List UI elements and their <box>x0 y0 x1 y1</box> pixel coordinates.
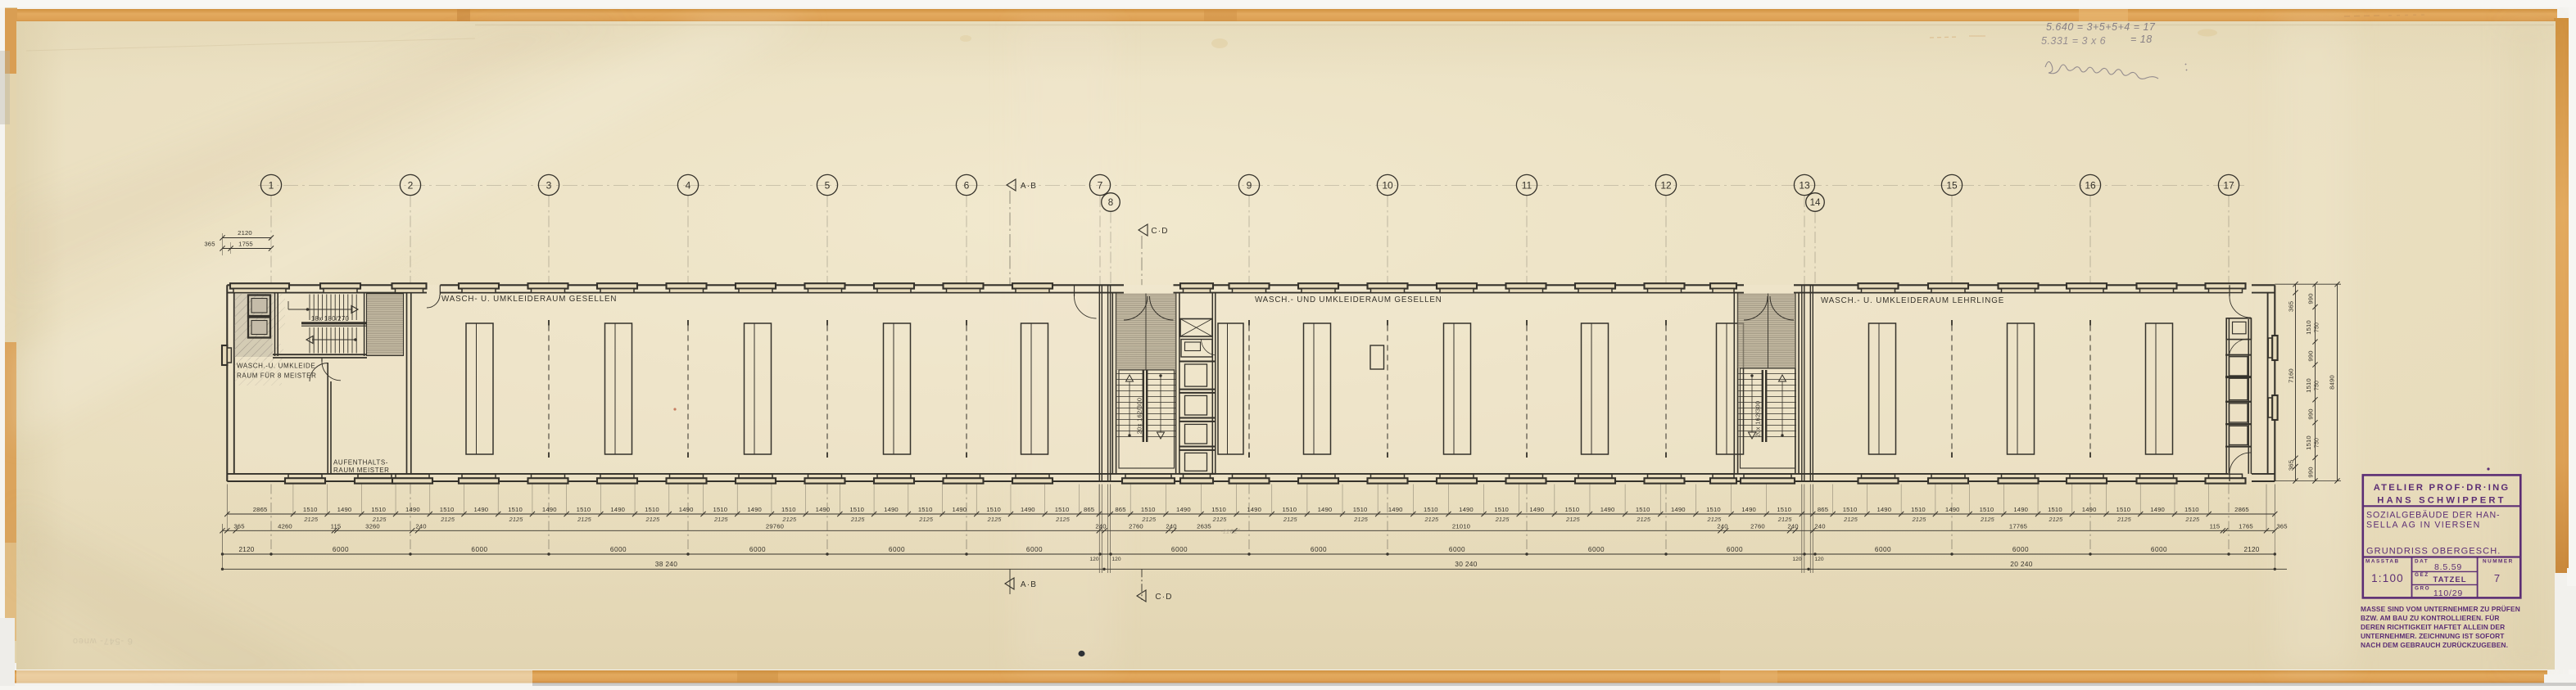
svg-text:6000: 6000 <box>1171 546 1188 553</box>
svg-text:1510: 1510 <box>1843 506 1858 513</box>
svg-text:1490: 1490 <box>1600 506 1615 513</box>
svg-text:1490: 1490 <box>1176 506 1191 513</box>
svg-text:7: 7 <box>2494 572 2500 584</box>
svg-text:2635: 2635 <box>1197 523 1211 530</box>
svg-text:A·B: A·B <box>1021 182 1037 191</box>
svg-text:1510: 1510 <box>1494 506 1509 513</box>
svg-text:17765: 17765 <box>2009 523 2027 530</box>
svg-text:1490: 1490 <box>747 506 762 513</box>
svg-text:1510: 1510 <box>781 506 796 513</box>
svg-text:2760: 2760 <box>1750 523 1765 530</box>
svg-text:NACH DEM GEBRAUCH ZURÜCKZUGEBE: NACH DEM GEBRAUCH ZURÜCKZUGEBEN. <box>2361 641 2508 649</box>
svg-text:= 18: = 18 <box>2130 34 2153 45</box>
svg-text:7160: 7160 <box>2288 368 2295 383</box>
svg-text:2125: 2125 <box>509 516 524 523</box>
svg-text:1490: 1490 <box>1671 506 1686 513</box>
svg-text:TATZEL: TATZEL <box>2433 575 2467 584</box>
svg-text:1510: 1510 <box>1282 506 1297 513</box>
svg-text:SOZIALGEBÄUDE DER HAN-: SOZIALGEBÄUDE DER HAN- <box>2366 511 2500 521</box>
svg-text:240: 240 <box>1717 523 1727 530</box>
svg-text:2125: 2125 <box>1283 516 1298 523</box>
svg-text:UNTERNEHMER. ZEICHNUNG IST SOF: UNTERNEHMER. ZEICHNUNG IST SOFORT <box>2361 632 2505 640</box>
svg-text:1490: 1490 <box>2082 506 2097 513</box>
svg-text:365: 365 <box>2288 460 2295 471</box>
svg-text:1510: 1510 <box>2184 506 2199 513</box>
svg-text:1490: 1490 <box>1388 506 1403 513</box>
svg-text:2125: 2125 <box>1055 516 1071 523</box>
svg-text:1510: 1510 <box>1911 506 1926 513</box>
svg-text:A·B: A·B <box>1021 580 1037 589</box>
svg-text:2125: 2125 <box>1495 516 1510 523</box>
svg-text:2125: 2125 <box>1843 516 1858 523</box>
svg-text:2125: 2125 <box>918 516 934 523</box>
svg-text:120: 120 <box>1814 557 1824 562</box>
svg-text:20 240: 20 240 <box>2010 560 2032 568</box>
svg-text:6000: 6000 <box>1449 546 1465 553</box>
svg-text:2: 2 <box>408 179 414 191</box>
svg-text:1490: 1490 <box>1459 506 1474 513</box>
svg-text:2760: 2760 <box>1129 523 1143 530</box>
svg-text:20x 162/300: 20x 162/300 <box>1754 401 1762 438</box>
svg-text:2125: 2125 <box>577 516 592 523</box>
svg-text:120: 120 <box>1089 557 1099 562</box>
svg-text:1490: 1490 <box>1741 506 1756 513</box>
svg-text:6000: 6000 <box>889 546 905 553</box>
svg-text:1510: 1510 <box>1636 506 1650 513</box>
svg-text:20x 162/300: 20x 162/300 <box>1136 398 1143 435</box>
svg-text:8.5.59: 8.5.59 <box>2434 562 2462 572</box>
svg-text:110/29: 110/29 <box>2433 589 2463 598</box>
svg-text:15: 15 <box>1946 179 1958 191</box>
svg-text:30 240: 30 240 <box>1455 560 1477 568</box>
svg-text:750: 750 <box>2315 438 2320 448</box>
svg-text:C·D: C·D <box>1155 593 1172 602</box>
svg-text:14: 14 <box>1810 198 1821 208</box>
svg-text:2125: 2125 <box>781 516 797 523</box>
svg-text:6000: 6000 <box>333 546 349 553</box>
svg-text:3260: 3260 <box>365 523 380 530</box>
svg-text:990: 990 <box>2307 350 2315 361</box>
svg-text:115: 115 <box>2210 523 2221 530</box>
svg-text:1510: 1510 <box>1424 506 1438 513</box>
svg-text:120: 120 <box>1792 557 1802 562</box>
svg-text:1490: 1490 <box>1945 506 1960 513</box>
svg-text:2120: 2120 <box>238 546 254 553</box>
svg-text:GRUNDRISS OBERGESCH.: GRUNDRISS OBERGESCH. <box>2366 547 2501 557</box>
svg-text:1490: 1490 <box>1529 506 1544 513</box>
svg-text:365: 365 <box>2276 523 2287 530</box>
svg-text:1510: 1510 <box>2305 378 2312 393</box>
svg-text:240: 240 <box>1166 523 1176 530</box>
svg-text:1510: 1510 <box>2305 435 2312 450</box>
svg-text:6000: 6000 <box>471 546 487 553</box>
svg-text:1490: 1490 <box>2150 506 2165 513</box>
svg-text:1510: 1510 <box>645 506 659 513</box>
svg-text:365: 365 <box>2288 301 2295 312</box>
svg-text:1765: 1765 <box>2239 523 2253 530</box>
svg-text:SELLA AG IN VIERSEN: SELLA AG IN VIERSEN <box>2366 521 2481 530</box>
svg-text:1510: 1510 <box>440 506 455 513</box>
svg-text:120: 120 <box>1111 557 1121 562</box>
svg-text:2125: 2125 <box>850 516 866 523</box>
svg-text:1490: 1490 <box>473 506 488 513</box>
svg-text:2125: 2125 <box>1707 516 1723 523</box>
svg-text:2120: 2120 <box>238 229 252 237</box>
svg-text:C·D: C·D <box>1151 227 1168 236</box>
svg-text:1510: 1510 <box>986 506 1001 513</box>
svg-text:2125: 2125 <box>987 516 1003 523</box>
svg-text:21010: 21010 <box>1452 523 1470 530</box>
svg-text:WASCH- U. UMKLEIDERAUM GESELLE: WASCH- U. UMKLEIDERAUM GESELLEN <box>441 295 617 304</box>
svg-text:1490: 1490 <box>679 506 694 513</box>
svg-text:6000: 6000 <box>2151 546 2167 553</box>
svg-text:38 240: 38 240 <box>655 560 677 568</box>
svg-text:1510: 1510 <box>303 506 318 513</box>
svg-text:1490: 1490 <box>1318 506 1333 513</box>
svg-text:29760: 29760 <box>766 523 784 530</box>
svg-text:1: 1 <box>269 179 274 191</box>
svg-text:1510: 1510 <box>1211 506 1226 513</box>
svg-text:1490: 1490 <box>884 506 899 513</box>
svg-text:2125: 2125 <box>1212 516 1228 523</box>
svg-text:2125: 2125 <box>713 516 729 523</box>
svg-text:990: 990 <box>2307 293 2315 304</box>
svg-text:17: 17 <box>2223 179 2234 191</box>
svg-text:1510: 1510 <box>508 506 523 513</box>
svg-text:BZW. AM BAU ZU KONTROLLIEREN.: BZW. AM BAU ZU KONTROLLIEREN. FÜR <box>2361 614 2500 622</box>
svg-text:8: 8 <box>1108 198 1113 208</box>
svg-text:6 -547- wneo: 6 -547- wneo <box>72 636 133 646</box>
svg-text:1510: 1510 <box>849 506 864 513</box>
svg-text:6000: 6000 <box>1875 546 1891 553</box>
svg-text:2125: 2125 <box>1565 516 1581 523</box>
svg-text:1490: 1490 <box>337 506 352 513</box>
svg-text:6000: 6000 <box>2012 546 2029 553</box>
svg-text:1490: 1490 <box>405 506 420 513</box>
svg-text:7: 7 <box>1098 179 1103 191</box>
svg-text:MASSE SIND VOM UNTERNEHMER ZU: MASSE SIND VOM UNTERNEHMER ZU PRÜFEN <box>2361 605 2520 613</box>
svg-text:HANS SCHWIPPERT: HANS SCHWIPPERT <box>2377 496 2506 506</box>
svg-text:1510: 1510 <box>1141 506 1156 513</box>
svg-text:MASSTAB: MASSTAB <box>2365 559 2400 565</box>
svg-text:1510: 1510 <box>2116 506 2131 513</box>
svg-text:2125: 2125 <box>440 516 455 523</box>
svg-text:1510: 1510 <box>1353 506 1368 513</box>
svg-text:2865: 2865 <box>253 506 268 513</box>
svg-text:1510: 1510 <box>1980 506 1994 513</box>
svg-text:11: 11 <box>1522 179 1532 191</box>
svg-text:5: 5 <box>825 179 831 191</box>
svg-text:1510: 1510 <box>1706 506 1721 513</box>
svg-text:ATELIER PROF·DR·ING: ATELIER PROF·DR·ING <box>2374 483 2510 493</box>
svg-text:2125: 2125 <box>1141 516 1157 523</box>
svg-text:1510: 1510 <box>1055 506 1070 513</box>
svg-text:RAUM FÜR 8 MEISTER: RAUM FÜR 8 MEISTER <box>237 372 316 380</box>
svg-text:1510: 1510 <box>1777 506 1791 513</box>
svg-text:3: 3 <box>546 179 552 191</box>
svg-text:6000: 6000 <box>749 546 766 553</box>
svg-text:8490: 8490 <box>2329 375 2336 390</box>
svg-text:365: 365 <box>233 523 244 530</box>
svg-text:WASCH.-U. UMKLEIDE: WASCH.-U. UMKLEIDE <box>237 363 315 370</box>
svg-text:2120: 2120 <box>2243 546 2259 553</box>
svg-text:990: 990 <box>2307 467 2315 477</box>
svg-text:2125: 2125 <box>2049 516 2064 523</box>
svg-text:2125: 2125 <box>645 516 661 523</box>
svg-text:WASCH.- U. UMKLEIDERAUM LEHRLI: WASCH.- U. UMKLEIDERAUM LEHRLINGE <box>1821 296 2004 305</box>
svg-text:1755: 1755 <box>238 241 253 248</box>
svg-text:1490: 1490 <box>953 506 967 513</box>
svg-text:1510: 1510 <box>2305 320 2312 335</box>
svg-text:750: 750 <box>2315 381 2320 390</box>
svg-text:2125: 2125 <box>2184 516 2200 523</box>
svg-text:DEREN RICHTIGKEIT HAFTET ALLEI: DEREN RICHTIGKEIT HAFTET ALLEIN DER <box>2361 623 2505 631</box>
svg-text:2125: 2125 <box>1424 516 1439 523</box>
svg-text:1490: 1490 <box>542 506 557 513</box>
svg-text:240: 240 <box>415 523 426 530</box>
svg-text:16: 16 <box>2085 179 2096 191</box>
svg-text:2125: 2125 <box>1353 516 1369 523</box>
svg-text:NUMMER: NUMMER <box>2483 559 2514 565</box>
svg-text:2125: 2125 <box>1980 516 1995 523</box>
svg-text:6000: 6000 <box>1026 546 1043 553</box>
svg-text:4: 4 <box>686 179 691 191</box>
svg-text:240: 240 <box>1095 523 1106 530</box>
svg-text:6: 6 <box>964 179 970 191</box>
svg-text:AUFENTHALTS-: AUFENTHALTS- <box>333 459 388 467</box>
svg-text:6000: 6000 <box>1588 546 1605 553</box>
svg-text:990: 990 <box>2307 408 2315 419</box>
svg-text:240: 240 <box>1787 523 1798 530</box>
svg-text:5.331 = 3 x 6: 5.331 = 3 x 6 <box>2041 35 2106 47</box>
svg-text:GRO: GRO <box>2415 586 2430 592</box>
svg-text:6000: 6000 <box>1727 546 1743 553</box>
svg-text:2125: 2125 <box>1777 516 1793 523</box>
svg-text:1490: 1490 <box>1877 506 1891 513</box>
svg-text:2865: 2865 <box>2234 506 2249 513</box>
svg-text:1490: 1490 <box>2013 506 2028 513</box>
svg-text:2125: 2125 <box>1912 516 1927 523</box>
svg-text:865: 865 <box>1818 506 1828 513</box>
svg-text:2125: 2125 <box>303 516 319 523</box>
svg-text:1490: 1490 <box>816 506 831 513</box>
svg-text:1510: 1510 <box>2048 506 2062 513</box>
svg-text:865: 865 <box>1084 506 1094 513</box>
svg-text:365: 365 <box>204 241 215 248</box>
svg-text:1490: 1490 <box>1021 506 1035 513</box>
svg-text:1510: 1510 <box>1565 506 1580 513</box>
svg-text:865: 865 <box>1115 506 1125 513</box>
svg-text:1510: 1510 <box>918 506 933 513</box>
svg-text:GEZ: GEZ <box>2415 572 2429 578</box>
svg-text:1510: 1510 <box>577 506 591 513</box>
svg-text:DAT: DAT <box>2415 559 2429 565</box>
svg-text:18x 180/270: 18x 180/270 <box>311 315 350 322</box>
svg-text:6000: 6000 <box>1311 546 1327 553</box>
svg-text:1490: 1490 <box>610 506 625 513</box>
svg-text:240: 240 <box>1814 523 1825 530</box>
svg-text:6000: 6000 <box>610 546 627 553</box>
svg-text:4260: 4260 <box>278 523 292 530</box>
svg-text:10: 10 <box>1382 179 1393 191</box>
svg-text:12: 12 <box>1660 179 1672 191</box>
svg-text:9: 9 <box>1247 179 1252 191</box>
svg-text:1:100: 1:100 <box>2371 572 2404 584</box>
svg-text:2125: 2125 <box>372 516 387 523</box>
svg-text:1510: 1510 <box>713 506 728 513</box>
svg-text:115: 115 <box>331 523 342 530</box>
svg-text:RAUM MEISTER: RAUM MEISTER <box>333 467 390 474</box>
svg-text:1510: 1510 <box>371 506 386 513</box>
svg-text:750: 750 <box>2315 322 2320 332</box>
svg-text:13: 13 <box>1799 179 1810 191</box>
svg-text:2125: 2125 <box>1636 516 1651 523</box>
svg-text:2125: 2125 <box>2116 516 2132 523</box>
svg-text:5.640 = 3+5+5+4 = 17: 5.640 = 3+5+5+4 = 17 <box>2046 21 2156 33</box>
svg-text:WASCH.- UND UMKLEIDERAUM GESEL: WASCH.- UND UMKLEIDERAUM GESELLEN <box>1255 295 1442 304</box>
